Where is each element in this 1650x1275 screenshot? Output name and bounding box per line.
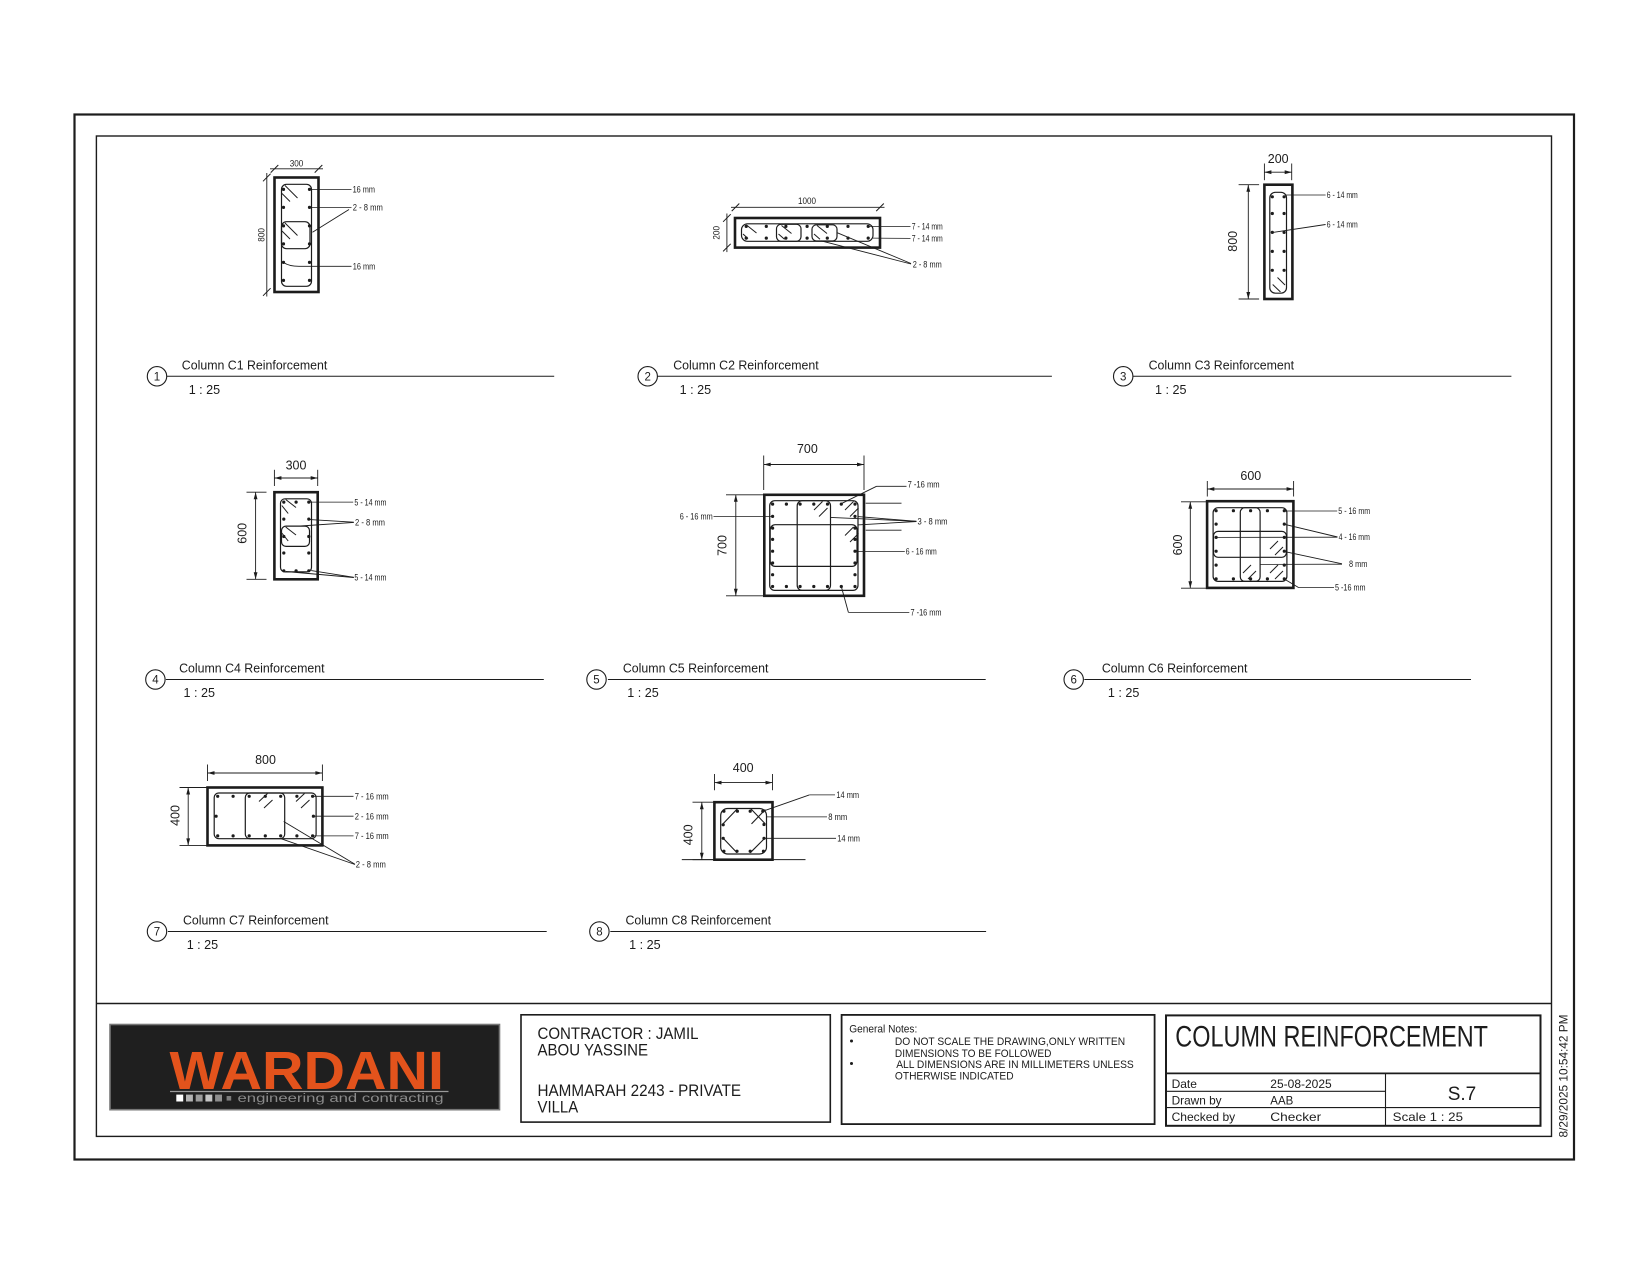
svg-text:Column C3 Reinforcement: Column C3 Reinforcement	[1149, 358, 1295, 373]
svg-text:CONTRACTOR : JAMIL: CONTRACTOR : JAMIL	[538, 1025, 699, 1043]
svg-text:700: 700	[797, 442, 818, 456]
svg-text:300: 300	[290, 158, 304, 168]
svg-text:Scale 1 : 25: Scale 1 : 25	[1393, 1110, 1464, 1124]
svg-text:WARDANI: WARDANI	[170, 1042, 445, 1101]
svg-text:8 mm: 8 mm	[828, 812, 847, 822]
svg-text:HAMMARAH 2243 - PRIVATE: HAMMARAH 2243 - PRIVATE	[538, 1082, 742, 1100]
svg-text:AAB: AAB	[1270, 1093, 1293, 1107]
svg-text:300: 300	[286, 458, 307, 472]
svg-text:3: 3	[1120, 372, 1126, 384]
svg-text:1 : 25: 1 : 25	[627, 685, 659, 700]
svg-text:14 mm: 14 mm	[837, 834, 860, 844]
svg-text:200: 200	[1268, 152, 1289, 166]
svg-text:7 - 16 mm: 7 - 16 mm	[355, 792, 389, 802]
svg-text:2 - 8 mm: 2 - 8 mm	[355, 517, 385, 527]
svg-text:5 - 16 mm: 5 - 16 mm	[1338, 506, 1370, 516]
svg-text:1 : 25: 1 : 25	[1155, 382, 1187, 397]
svg-text:600: 600	[1171, 535, 1185, 556]
svg-text:7 - 16 mm: 7 - 16 mm	[355, 831, 389, 841]
svg-text:S.7: S.7	[1448, 1084, 1477, 1105]
svg-text:16 mm: 16 mm	[353, 185, 375, 195]
svg-text:6 - 16 mm: 6 - 16 mm	[680, 512, 713, 522]
svg-text:1 : 25: 1 : 25	[629, 937, 661, 952]
svg-text:Column C5 Reinforcement: Column C5 Reinforcement	[623, 661, 769, 676]
svg-text:Column C7 Reinforcement: Column C7 Reinforcement	[183, 913, 329, 928]
svg-text:400: 400	[169, 805, 183, 826]
svg-text:Column C8 Reinforcement: Column C8 Reinforcement	[626, 913, 772, 928]
svg-text:1 : 25: 1 : 25	[189, 382, 221, 397]
svg-text:2 - 8 mm: 2 - 8 mm	[913, 260, 942, 270]
svg-text:400: 400	[681, 824, 695, 845]
svg-text:14 mm: 14 mm	[836, 790, 859, 800]
svg-text:200: 200	[712, 226, 722, 240]
svg-text:8: 8	[596, 927, 602, 939]
svg-text:16 mm: 16 mm	[353, 262, 375, 272]
svg-text:1 : 25: 1 : 25	[1108, 685, 1140, 700]
svg-text:Date: Date	[1172, 1077, 1198, 1091]
svg-text:DO NOT SCALE THE DRAWING,ONLY: DO NOT SCALE THE DRAWING,ONLY WRITTEN	[895, 1036, 1125, 1048]
svg-text:OTHERWISE INDICATED: OTHERWISE INDICATED	[895, 1071, 1014, 1083]
svg-text:2 - 8 mm: 2 - 8 mm	[353, 203, 383, 213]
svg-text:4: 4	[152, 675, 159, 687]
svg-text:600: 600	[235, 523, 249, 544]
svg-text:Column C6 Reinforcement: Column C6 Reinforcement	[1102, 661, 1248, 676]
svg-text:1 : 25: 1 : 25	[680, 382, 712, 397]
svg-text:25-08-2025: 25-08-2025	[1270, 1077, 1332, 1091]
svg-text:600: 600	[1240, 469, 1261, 483]
svg-text:ALL DIMENSIONS ARE IN MILLIMET: ALL DIMENSIONS ARE IN MILLIMETERS UNLESS	[896, 1059, 1134, 1071]
svg-text:700: 700	[716, 535, 730, 556]
svg-text:6: 6	[1070, 675, 1076, 687]
svg-text:8 mm: 8 mm	[1349, 559, 1367, 569]
svg-text:2 - 8 mm: 2 - 8 mm	[356, 859, 386, 869]
svg-text:1000: 1000	[798, 196, 816, 206]
svg-text:ABOU YASSINE: ABOU YASSINE	[538, 1042, 649, 1060]
svg-text:6 - 14 mm: 6 - 14 mm	[1327, 190, 1358, 200]
svg-text:7 - 14 mm: 7 - 14 mm	[912, 222, 943, 232]
svg-text:5: 5	[593, 675, 599, 687]
svg-text:Checker: Checker	[1270, 1110, 1321, 1124]
svg-text:5 -16 mm: 5 -16 mm	[1335, 583, 1366, 593]
svg-text:COLUMN REINFORCEMENT: COLUMN REINFORCEMENT	[1175, 1021, 1488, 1054]
svg-text:DIMENSIONS TO BE FOLLOWED: DIMENSIONS TO BE FOLLOWED	[895, 1048, 1052, 1060]
svg-text:4 - 16 mm: 4 - 16 mm	[1339, 532, 1370, 542]
svg-text:3 - 8 mm: 3 - 8 mm	[918, 516, 948, 526]
svg-text:2 - 16 mm: 2 - 16 mm	[355, 811, 389, 821]
svg-text:5 - 14 mm: 5 - 14 mm	[354, 497, 386, 507]
svg-text:800: 800	[255, 753, 276, 767]
svg-text:Column C2 Reinforcement: Column C2 Reinforcement	[673, 358, 819, 373]
svg-text:Column C4 Reinforcement: Column C4 Reinforcement	[179, 661, 325, 676]
svg-text:Column C1 Reinforcement: Column C1 Reinforcement	[182, 358, 328, 373]
svg-text:Checked by: Checked by	[1172, 1110, 1236, 1124]
svg-text:8/29/2025 10:54:42 PM: 8/29/2025 10:54:42 PM	[1556, 1014, 1570, 1137]
svg-text:1: 1	[154, 372, 160, 384]
svg-text:7 -16 mm: 7 -16 mm	[908, 480, 940, 490]
svg-text:General Notes:: General Notes:	[849, 1023, 917, 1035]
svg-text:1 : 25: 1 : 25	[187, 937, 219, 952]
svg-text:6 - 14 mm: 6 - 14 mm	[1327, 220, 1358, 230]
svg-text:800: 800	[1226, 231, 1240, 252]
svg-text:VILLA: VILLA	[538, 1098, 579, 1116]
svg-text:5 - 14 mm: 5 - 14 mm	[354, 573, 386, 583]
svg-text:7 - 14 mm: 7 - 14 mm	[912, 234, 943, 244]
svg-text:1 : 25: 1 : 25	[184, 685, 216, 700]
svg-text:7: 7	[154, 927, 160, 939]
svg-text:400: 400	[733, 761, 754, 775]
svg-text:6 - 16 mm: 6 - 16 mm	[906, 547, 937, 557]
svg-text:800: 800	[257, 228, 267, 242]
svg-text:engineering and contracting: engineering and contracting	[238, 1093, 444, 1105]
svg-text:2: 2	[644, 372, 650, 384]
svg-text:7 -16 mm: 7 -16 mm	[911, 608, 942, 618]
svg-text:Drawn by: Drawn by	[1172, 1093, 1222, 1107]
